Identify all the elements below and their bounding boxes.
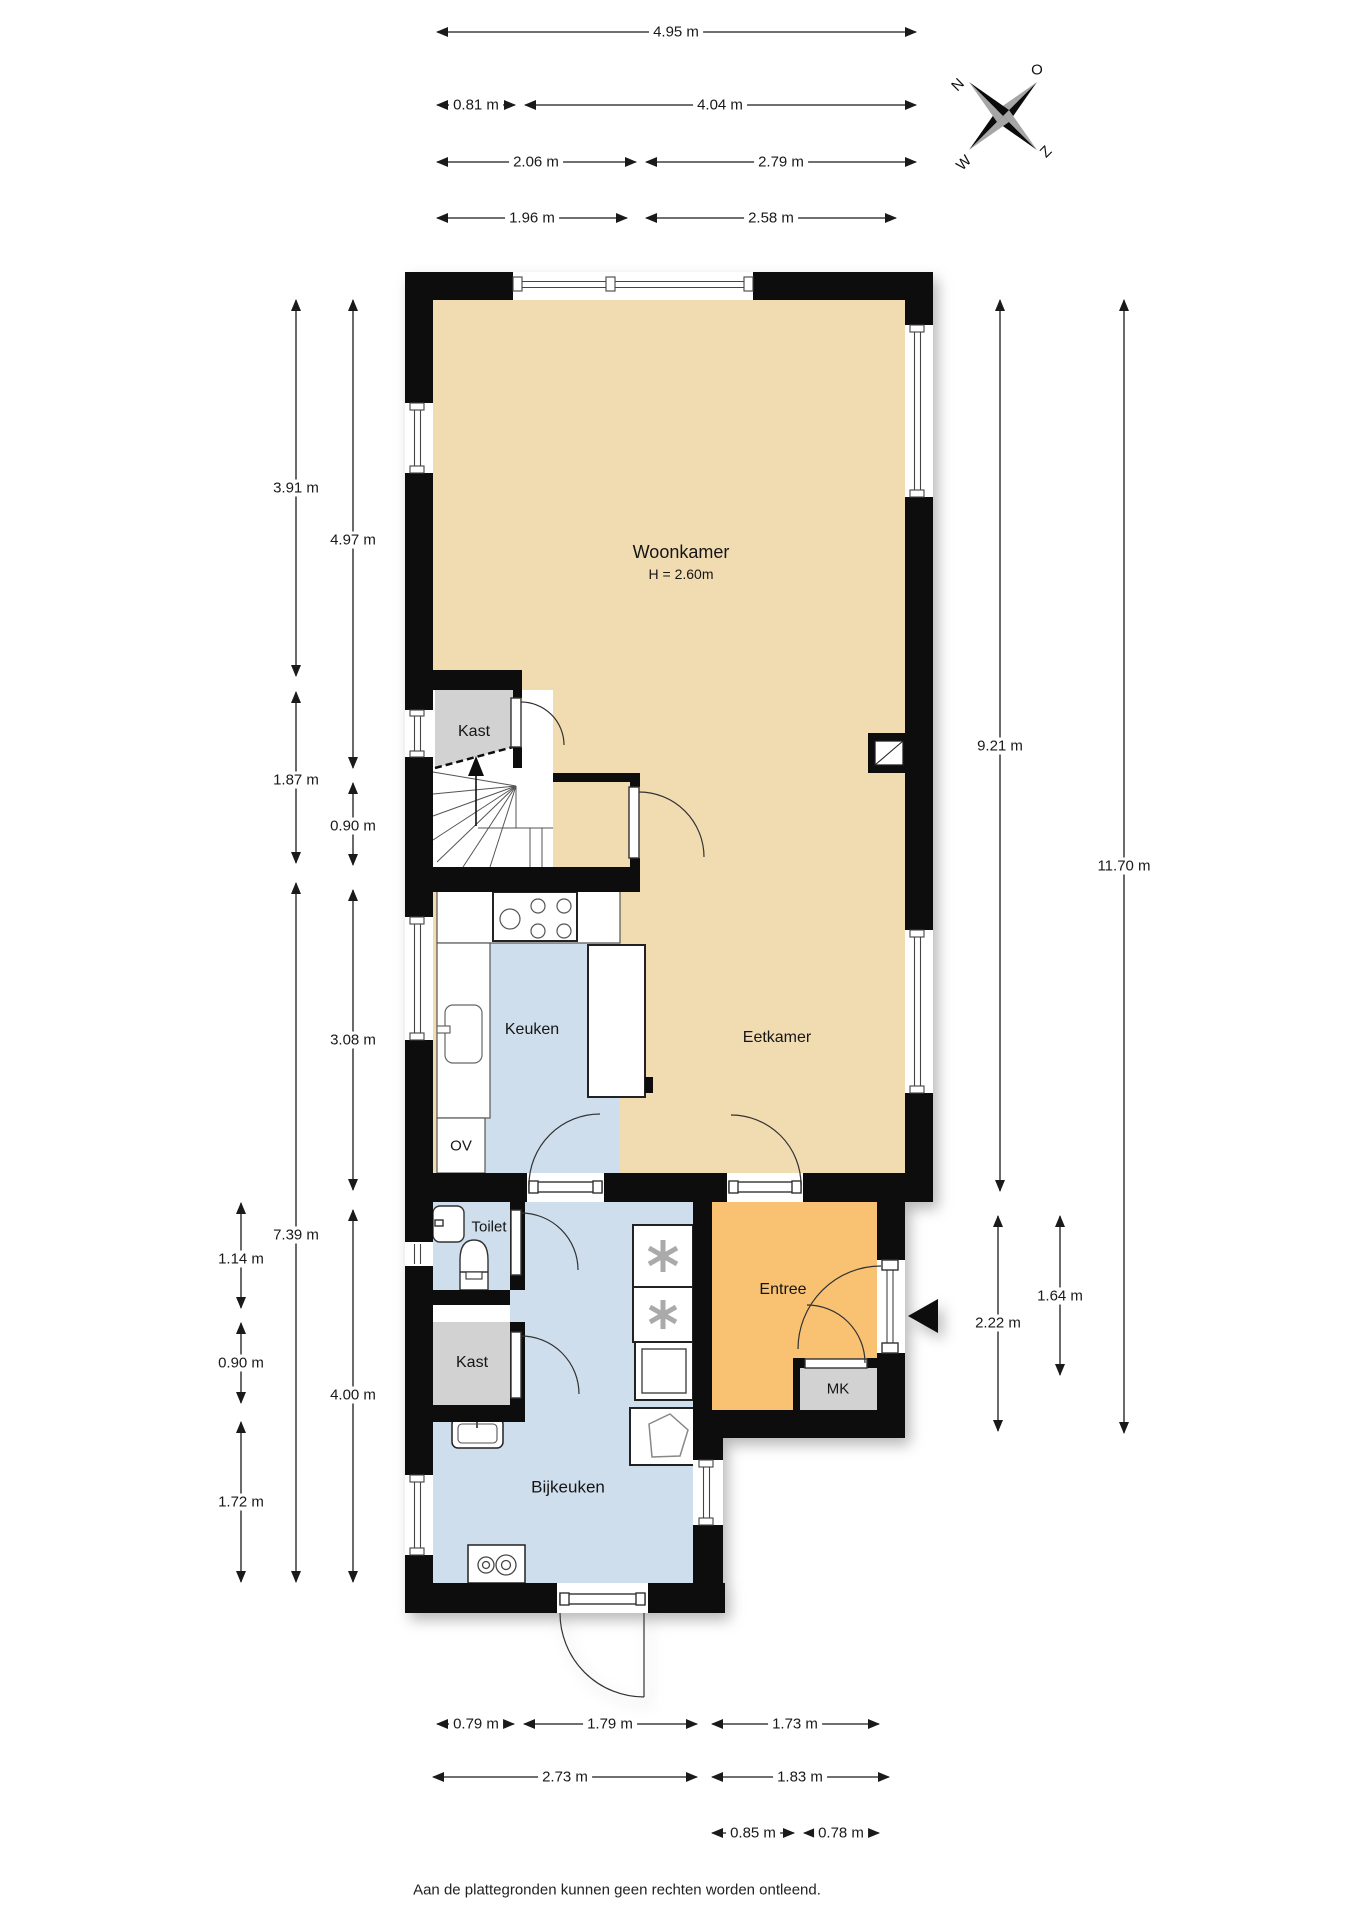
- room-label-kast-lower: Kast: [456, 1355, 488, 1371]
- dim-top-279: 2.79 m: [754, 154, 808, 171]
- dim-right-921: 9.21 m: [973, 738, 1027, 755]
- floorplan-page: 4.95 m 0.81 m 4.04 m 2.06 m 2.79 m 1.96 …: [0, 0, 1358, 1920]
- burner-small-4: [557, 924, 571, 938]
- room-label-toilet: Toilet: [471, 1220, 506, 1235]
- dim-left-090b: 0.90 m: [214, 1355, 268, 1372]
- dim-left-391: 3.91 m: [269, 480, 323, 497]
- kitchen-peninsula: [588, 945, 645, 1097]
- dim-left-308: 3.08 m: [326, 1032, 380, 1049]
- dim-right-222: 2.22 m: [971, 1315, 1025, 1332]
- dim-top-258: 2.58 m: [744, 210, 798, 227]
- dim-top-206: 2.06 m: [509, 154, 563, 171]
- room-label-kast-upper: Kast: [458, 724, 490, 740]
- compass-east-label: O: [1031, 62, 1043, 79]
- flue-vent-icon: [875, 741, 903, 765]
- burner-small-1: [531, 899, 545, 913]
- footer-disclaimer: Aan de plattegronden kunnen geen rechten…: [413, 1882, 821, 1899]
- kitchen-faucet-icon: [437, 1026, 450, 1033]
- burner-large: [500, 909, 520, 929]
- dim-bottom-078: 0.78 m: [814, 1825, 868, 1842]
- room-label-eetkamer: Eetkamer: [743, 1030, 811, 1046]
- dim-right-164: 1.64 m: [1033, 1288, 1087, 1305]
- dim-bottom-085: 0.85 m: [726, 1825, 780, 1842]
- dim-left-497: 4.97 m: [326, 532, 380, 549]
- dim-top-495: 4.95 m: [649, 24, 703, 41]
- dim-bottom-183: 1.83 m: [773, 1769, 827, 1786]
- dim-bottom-273: 2.73 m: [538, 1769, 592, 1786]
- dim-left-739: 7.39 m: [269, 1227, 323, 1244]
- room-label-mk: MK: [827, 1382, 850, 1397]
- room-label-woonkamer-height: H = 2.60m: [649, 567, 714, 581]
- dim-left-090a: 0.90 m: [326, 818, 380, 835]
- dim-top-081: 0.81 m: [449, 97, 503, 114]
- dim-left-172: 1.72 m: [214, 1494, 268, 1511]
- compass-icon: [969, 82, 1037, 150]
- dim-left-400: 4.00 m: [326, 1387, 380, 1404]
- dim-bottom-179: 1.79 m: [583, 1716, 637, 1733]
- room-label-entree: Entree: [759, 1282, 806, 1298]
- window-right-1: [905, 325, 933, 497]
- window-left-toilet: [405, 1242, 433, 1266]
- back-door: [557, 1583, 648, 1697]
- window-left-1: [405, 403, 433, 473]
- window-left-utility: [405, 1475, 433, 1555]
- peninsula-wall-stub: [645, 1077, 653, 1093]
- window-left-3: [405, 917, 433, 1040]
- dim-bottom-079: 0.79 m: [449, 1716, 503, 1733]
- room-label-ov: OV: [450, 1139, 472, 1154]
- entrance-arrow-icon: [908, 1299, 938, 1333]
- building: [405, 272, 938, 1697]
- room-label-keuken: Keuken: [505, 1022, 559, 1038]
- dim-top-404: 4.04 m: [693, 97, 747, 114]
- toilet-bowl-icon: [460, 1240, 488, 1290]
- dim-left-114: 1.14 m: [214, 1251, 268, 1268]
- floor-niche: [433, 1305, 510, 1322]
- dim-right-1170: 11.70 m: [1093, 858, 1154, 875]
- window-utility-right: [693, 1460, 723, 1525]
- burner-small-2: [557, 899, 571, 913]
- window-left-2: [405, 710, 433, 757]
- floorplan-drawing: [0, 0, 1358, 1920]
- room-label-bijkeuken: Bijkeuken: [531, 1479, 605, 1496]
- kitchen-sink-icon: [445, 1005, 482, 1063]
- dim-top-196: 1.96 m: [505, 210, 559, 227]
- room-label-woonkamer: Woonkamer: [633, 543, 730, 561]
- dim-left-187: 1.87 m: [269, 772, 323, 789]
- toilet-faucet-icon: [435, 1220, 443, 1226]
- window-top: [513, 272, 753, 300]
- dim-bottom-173: 1.73 m: [768, 1716, 822, 1733]
- window-right-2: [905, 930, 933, 1093]
- burner-small-3: [531, 924, 545, 938]
